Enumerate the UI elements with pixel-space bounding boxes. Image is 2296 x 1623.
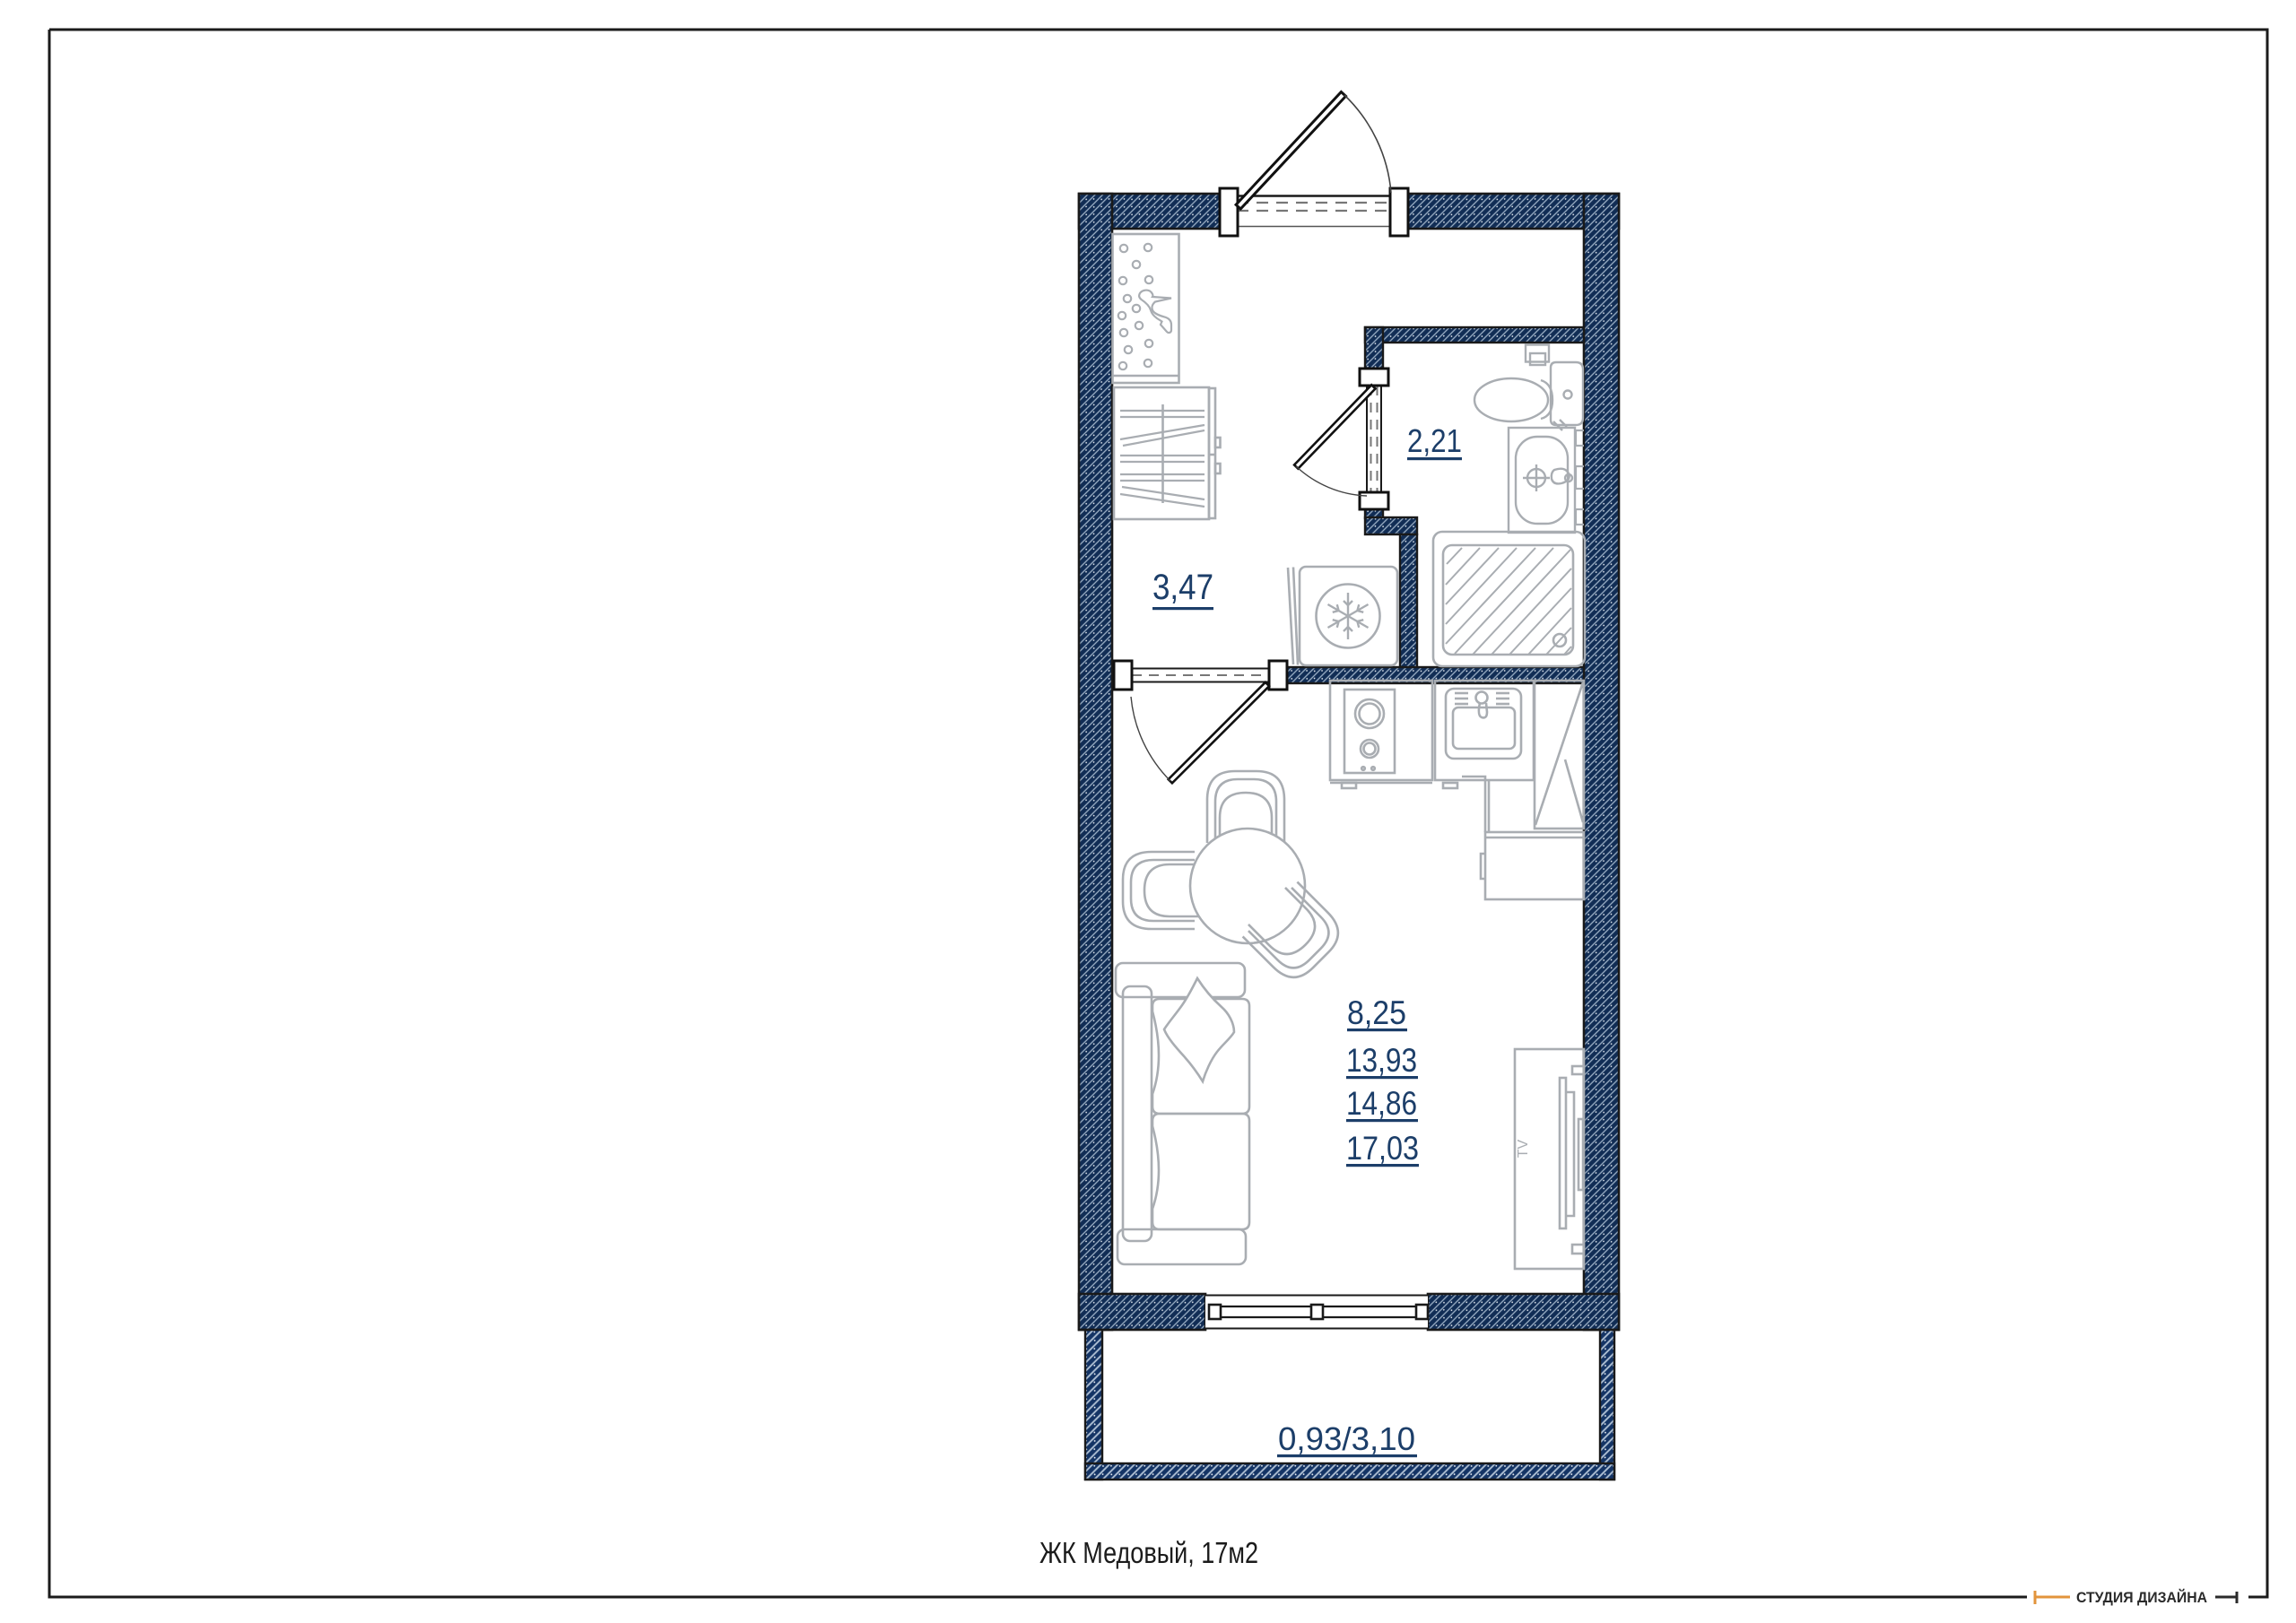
svg-text:13,93: 13,93	[1346, 1042, 1417, 1079]
svg-text:14,86: 14,86	[1346, 1085, 1417, 1122]
svg-text:17,03: 17,03	[1346, 1130, 1419, 1167]
svg-text:3,47: 3,47	[1152, 568, 1213, 607]
svg-text:ЖК Медовый, 17м2: ЖК Медовый, 17м2	[1039, 1536, 1258, 1569]
svg-text:2,21: 2,21	[1407, 422, 1462, 459]
svg-text:СТУДИЯ ДИЗАЙНА: СТУДИЯ ДИЗАЙНА	[2076, 1589, 2207, 1606]
svg-text:8,25: 8,25	[1347, 994, 1406, 1031]
svg-text:0,93/3,10: 0,93/3,10	[1278, 1420, 1415, 1457]
svg-text:TV: TV	[1516, 1139, 1531, 1158]
